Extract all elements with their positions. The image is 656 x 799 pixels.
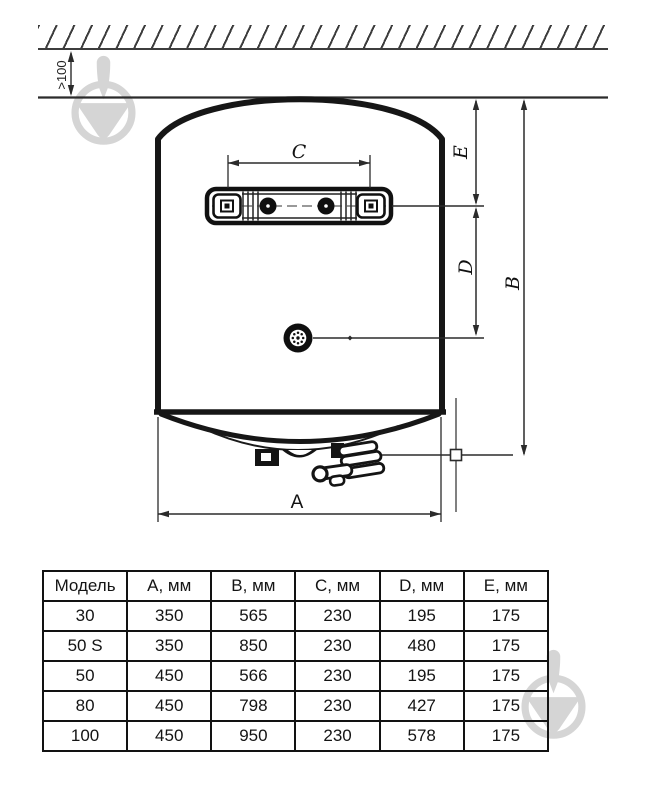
table-cell: 175	[464, 631, 548, 661]
table-cell: 850	[211, 631, 295, 661]
header-cell-d: D, мм	[380, 571, 464, 601]
table-cell: 230	[295, 721, 379, 751]
dimension-a: A	[158, 417, 441, 522]
table-cell: 450	[127, 661, 211, 691]
table-cell: 427	[380, 691, 464, 721]
dimensions-table-head: Модель A, мм B, мм C, мм D, мм E, мм	[43, 571, 548, 601]
table-header-row: Модель A, мм B, мм C, мм D, мм E, мм	[43, 571, 548, 601]
dimensions-table: Модель A, мм B, мм C, мм D, мм E, мм 30 …	[42, 570, 549, 752]
table-cell: 50 S	[43, 631, 127, 661]
dimension-b: B	[502, 99, 527, 456]
bottom-reference	[382, 398, 513, 512]
table-cell: 480	[380, 631, 464, 661]
table-cell: 950	[211, 721, 295, 751]
table-cell: 565	[211, 601, 295, 631]
dim-a-label: A	[291, 492, 304, 513]
table-cell: 30	[43, 601, 127, 631]
water-heater-dimension-diagram: >100	[0, 0, 656, 560]
locator-square	[451, 450, 462, 461]
dimension-e: E	[450, 99, 479, 205]
table-cell: 230	[295, 601, 379, 631]
clearance-label: >100	[54, 60, 69, 89]
table-cell: 578	[380, 721, 464, 751]
table-cell: 230	[295, 631, 379, 661]
table-cell: 175	[464, 661, 548, 691]
table-row: 50 450 566 230 195 175	[43, 661, 548, 691]
table-cell: 230	[295, 691, 379, 721]
table-cell: 450	[127, 721, 211, 751]
dim-b-label: B	[502, 276, 524, 291]
table-row: 50 S 350 850 230 480 175	[43, 631, 548, 661]
mounting-bracket	[207, 189, 391, 223]
table-cell: 195	[380, 601, 464, 631]
header-cell-c: C, мм	[295, 571, 379, 601]
table-cell: 350	[127, 631, 211, 661]
table-cell: 175	[464, 721, 548, 751]
dimension-d: D	[455, 207, 479, 336]
header-cell-model: Модель	[43, 571, 127, 601]
header-cell-b: B, мм	[211, 571, 295, 601]
table-cell: 450	[127, 691, 211, 721]
table-cell: 195	[380, 661, 464, 691]
header-cell-e: E, мм	[464, 571, 548, 601]
dim-c-label: C	[292, 141, 307, 163]
table-cell: 230	[295, 661, 379, 691]
header-cell-a: A, мм	[127, 571, 211, 601]
dimensions-table-body: 30 350 565 230 195 175 50 S 350 850 230 …	[43, 601, 548, 751]
thermostat-knob	[284, 324, 313, 353]
dim-e-label: E	[450, 145, 472, 160]
table-cell: 100	[43, 721, 127, 751]
water-heater-dimensions-page: >100	[0, 0, 656, 799]
table-cell: 798	[211, 691, 295, 721]
table-row: 100 450 950 230 578 175	[43, 721, 548, 751]
table-cell: 80	[43, 691, 127, 721]
table-cell: 50	[43, 661, 127, 691]
safety-valve	[312, 463, 353, 489]
table-row: 30 350 565 230 195 175	[43, 601, 548, 631]
clearance-dimension: >100	[54, 51, 74, 96]
table-cell: 566	[211, 661, 295, 691]
table-cell: 350	[127, 601, 211, 631]
dim-d-label: D	[455, 259, 477, 275]
table-cell: 175	[464, 601, 548, 631]
table-row: 80 450 798 230 427 175	[43, 691, 548, 721]
table-cell: 175	[464, 691, 548, 721]
